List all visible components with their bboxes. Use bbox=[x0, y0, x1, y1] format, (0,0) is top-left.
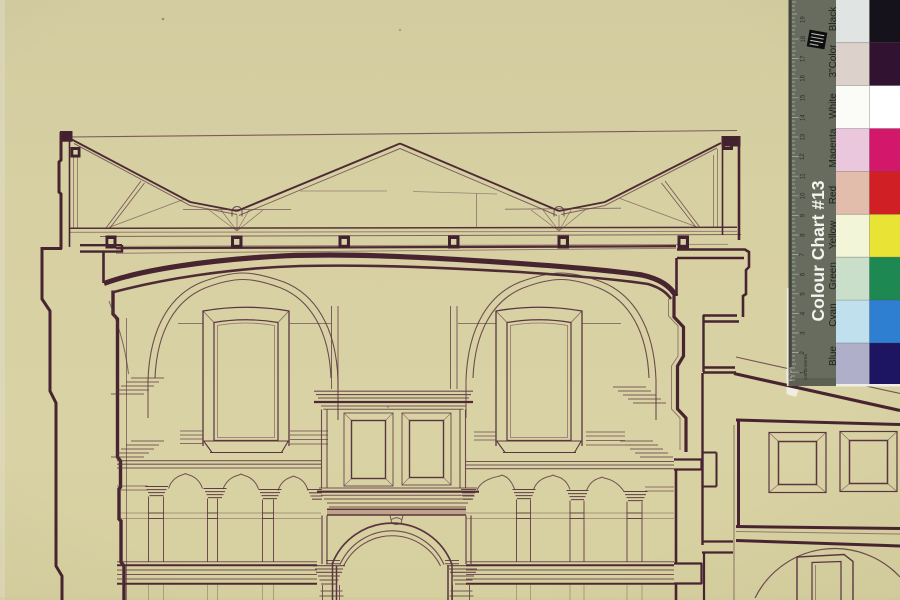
svg-text:Centimetres: Centimetres bbox=[803, 353, 809, 379]
svg-text:17: 17 bbox=[801, 55, 807, 62]
svg-text:18: 18 bbox=[801, 35, 807, 42]
svg-text:14: 14 bbox=[800, 114, 806, 121]
svg-text:15: 15 bbox=[801, 94, 807, 101]
svg-text:Colour Chart #13: Colour Chart #13 bbox=[808, 180, 828, 321]
svg-text:12: 12 bbox=[800, 153, 806, 160]
svg-text:Inches: Inches bbox=[788, 366, 794, 381]
svg-text:13: 13 bbox=[800, 133, 806, 140]
svg-text:19: 19 bbox=[800, 16, 806, 23]
svg-text:16: 16 bbox=[801, 74, 807, 81]
svg-text:11: 11 bbox=[801, 173, 807, 180]
svg-text:10: 10 bbox=[801, 192, 807, 199]
